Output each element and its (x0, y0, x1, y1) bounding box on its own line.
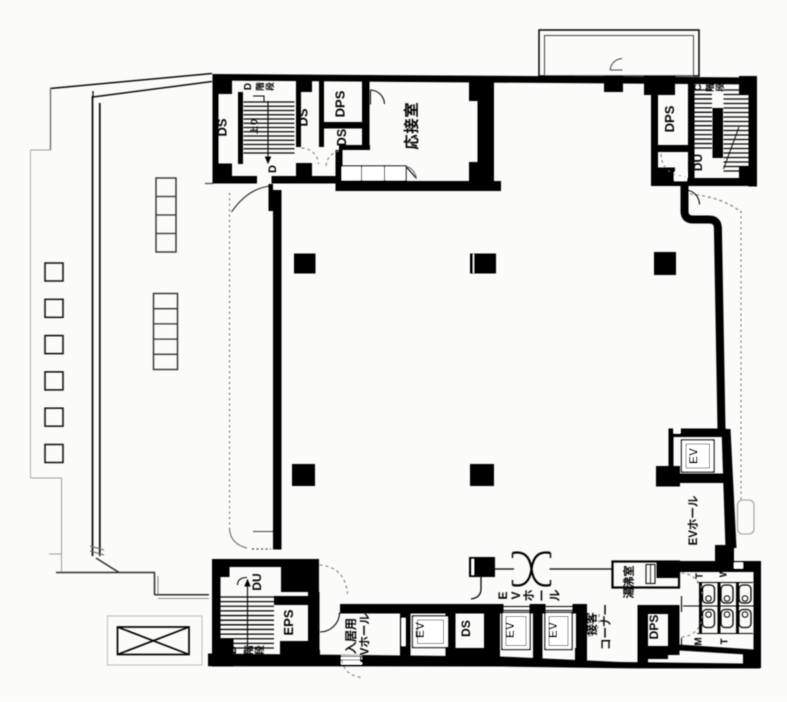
svg-text:EV: EV (503, 622, 517, 638)
svg-text:入居用: 入居用 (344, 618, 358, 654)
svg-text:DPS: DPS (662, 105, 677, 132)
svg-text:階: 階 (705, 83, 715, 92)
svg-text:EV: EV (546, 622, 560, 638)
svg-text:DS: DS (335, 129, 349, 146)
svg-text:M: M (694, 637, 705, 645)
svg-text:D: D (225, 645, 239, 654)
svg-text:DPS: DPS (647, 615, 661, 640)
svg-text:EV: EV (687, 448, 701, 464)
svg-text:D: D (243, 83, 254, 90)
svg-text:階: 階 (255, 82, 265, 91)
svg-text:T: T (695, 573, 706, 579)
svg-text:T: T (720, 638, 731, 644)
svg-text:EPS: EPS (281, 609, 296, 635)
svg-text:階: 階 (243, 645, 255, 655)
svg-text:応接室: 応接室 (403, 101, 421, 149)
svg-text:E: E (496, 591, 510, 599)
svg-text:ル: ル (548, 589, 562, 601)
svg-text:ー: ー (535, 589, 549, 601)
svg-text:W: W (719, 567, 730, 577)
svg-text:DU: DU (250, 573, 264, 590)
svg-text:上り: 上り (249, 118, 259, 134)
svg-text:段: 段 (254, 645, 266, 655)
svg-text:湯沸室: 湯沸室 (622, 566, 636, 599)
svg-text:V: V (509, 591, 523, 599)
svg-text:段: 段 (715, 83, 725, 92)
svg-text:接客: 接客 (585, 612, 599, 635)
svg-text:EVホール: EVホール (359, 613, 372, 663)
svg-text:D: D (267, 165, 279, 173)
svg-text:段: 段 (265, 82, 275, 91)
svg-text:DPS: DPS (333, 90, 348, 117)
svg-text:DS: DS (296, 108, 311, 126)
svg-text:C: C (693, 84, 704, 91)
svg-text:DU: DU (691, 154, 705, 171)
svg-text:ホ: ホ (522, 589, 536, 601)
svg-text:コーナー: コーナー (600, 604, 613, 650)
svg-text:EV: EV (413, 622, 427, 638)
svg-text:DS: DS (459, 620, 473, 637)
svg-text:EVホール: EVホール (687, 495, 700, 545)
svg-text:DS: DS (215, 118, 230, 136)
